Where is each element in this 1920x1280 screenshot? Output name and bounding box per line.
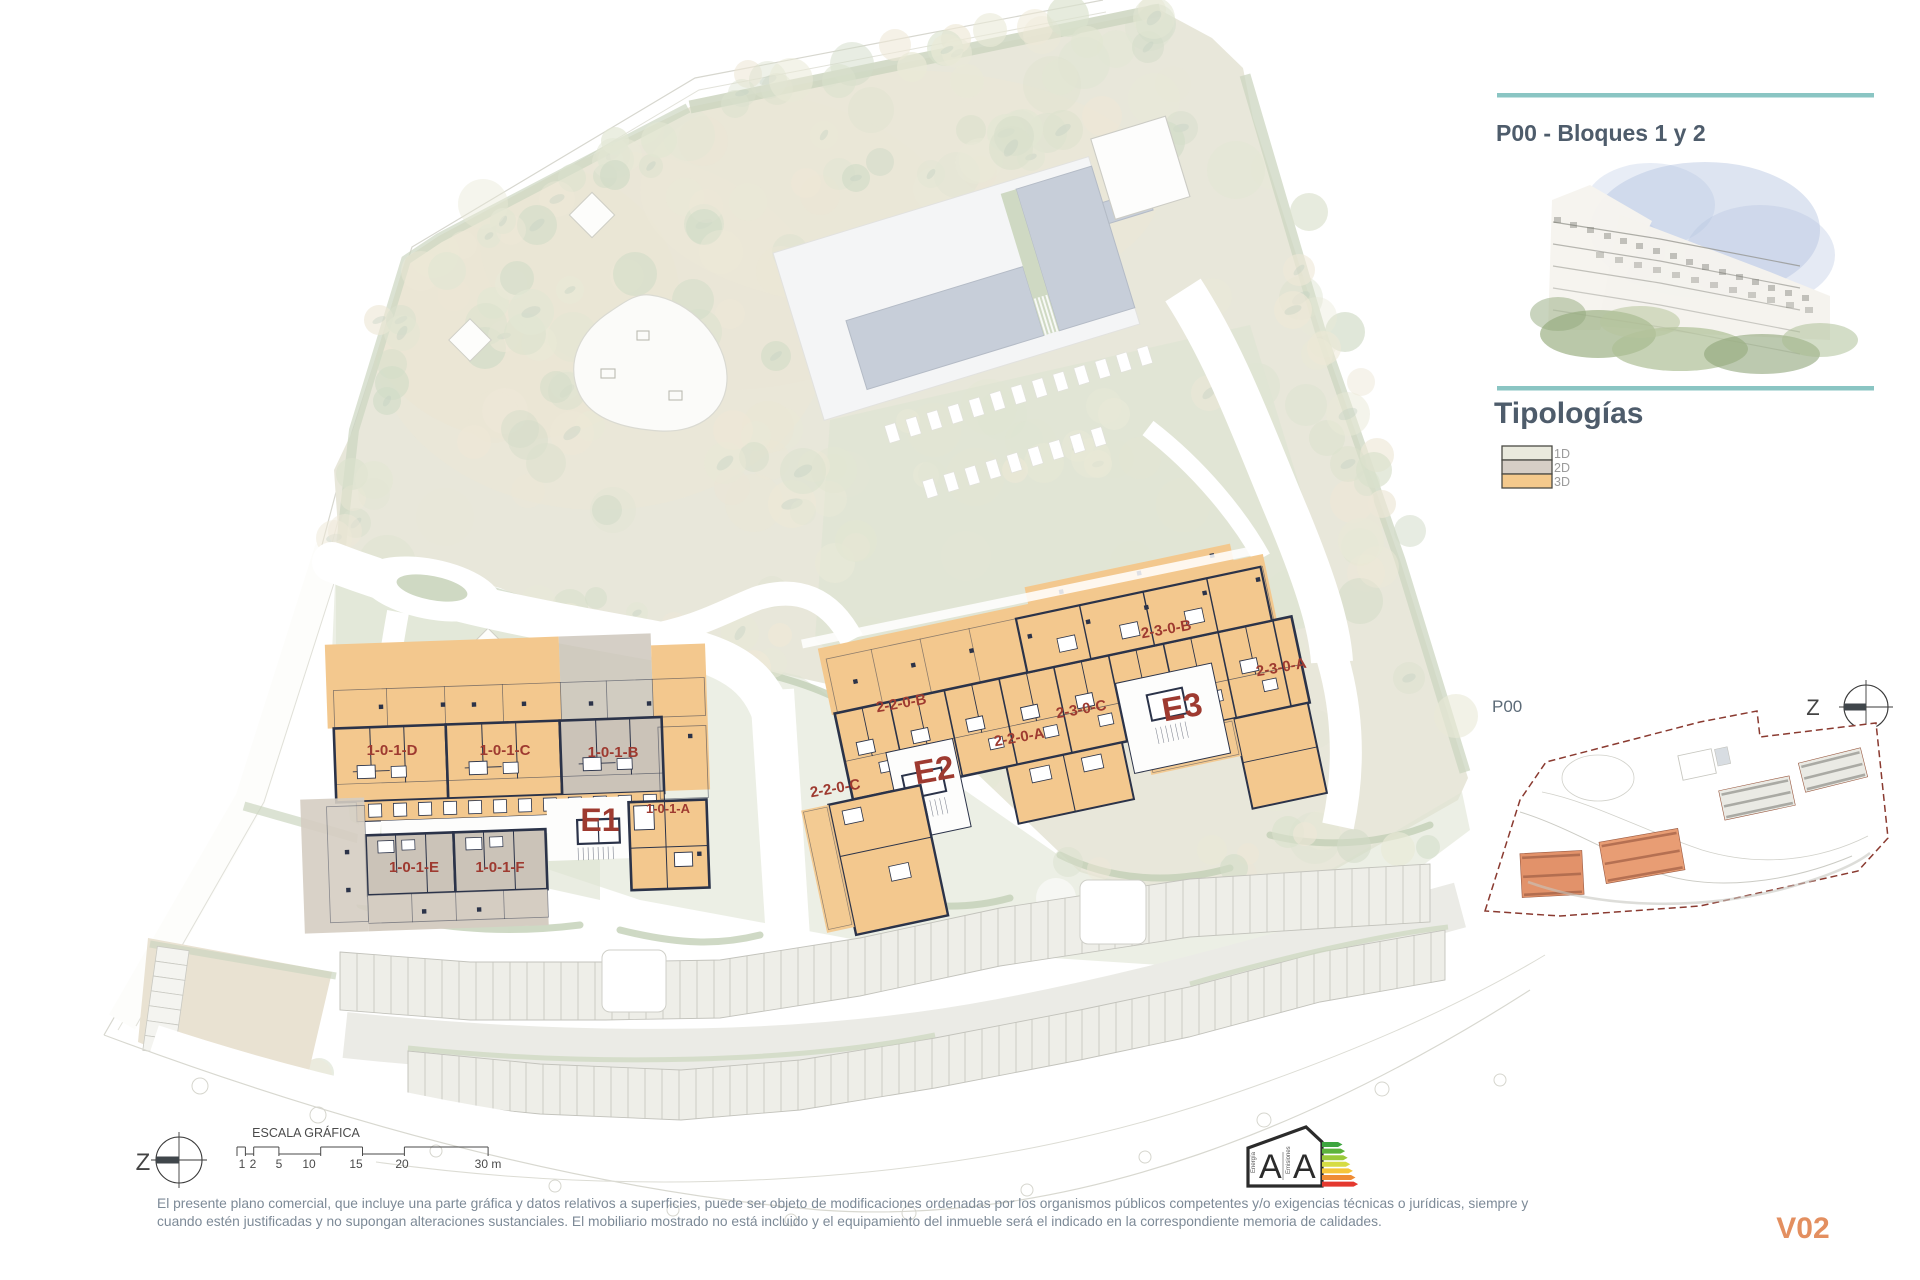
svg-text:1-0-1-B: 1-0-1-B: [588, 744, 639, 761]
svg-text:1: 1: [239, 1157, 246, 1171]
svg-text:2D: 2D: [1554, 461, 1570, 475]
svg-text:15: 15: [349, 1157, 363, 1171]
svg-text:1D: 1D: [1554, 447, 1570, 461]
svg-text:Tipologías: Tipologías: [1494, 397, 1643, 430]
svg-text:P00 - Bloques 1 y 2: P00 - Bloques 1 y 2: [1496, 120, 1706, 146]
svg-text:E2: E2: [911, 748, 957, 791]
svg-text:5: 5: [276, 1157, 283, 1171]
svg-text:E3: E3: [1159, 685, 1205, 728]
svg-text:10: 10: [302, 1157, 316, 1171]
svg-text:El presente plano comercial, q: El presente plano comercial, que incluye…: [157, 1196, 1528, 1211]
svg-text:1-0-1-F: 1-0-1-F: [475, 859, 524, 876]
svg-text:A: A: [1293, 1148, 1316, 1186]
svg-text:30 m: 30 m: [475, 1157, 502, 1171]
svg-text:E1: E1: [580, 802, 619, 838]
svg-text:ESCALA GRÁFICA: ESCALA GRÁFICA: [252, 1125, 360, 1140]
svg-text:1-0-1-D: 1-0-1-D: [367, 742, 418, 759]
svg-text:3D: 3D: [1554, 475, 1570, 489]
svg-text:1-0-1-E: 1-0-1-E: [389, 859, 439, 876]
svg-text:Energía: Energía: [1251, 1151, 1257, 1173]
svg-text:A: A: [1259, 1148, 1282, 1186]
svg-text:Z: Z: [1806, 695, 1819, 720]
svg-text:1-0-1-A: 1-0-1-A: [646, 801, 691, 816]
svg-text:V02: V02: [1776, 1212, 1829, 1245]
svg-text:Z: Z: [136, 1149, 151, 1176]
svg-text:2: 2: [250, 1157, 257, 1171]
svg-text:P00: P00: [1492, 697, 1522, 716]
svg-text:20: 20: [395, 1157, 409, 1171]
svg-text:Emisiones: Emisiones: [1286, 1146, 1292, 1174]
svg-text:cuando estén justificadas y no: cuando estén justificadas y no supongan …: [157, 1214, 1382, 1229]
svg-text:1-0-1-C: 1-0-1-C: [480, 742, 531, 759]
